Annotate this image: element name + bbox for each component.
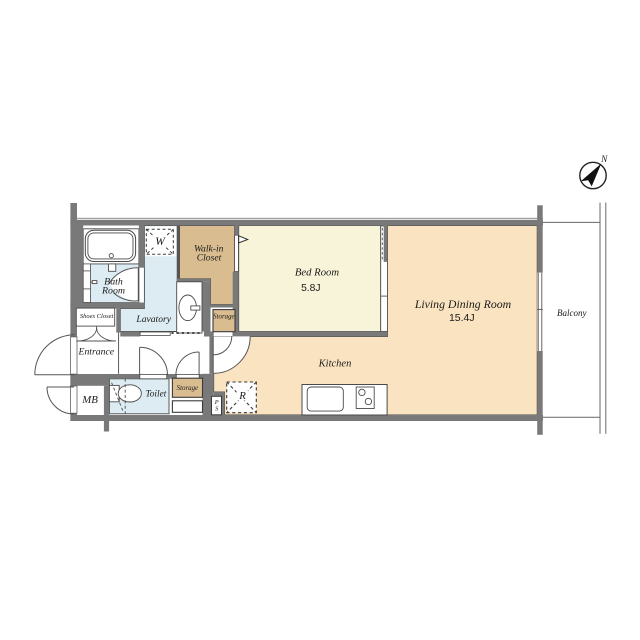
svg-text:Bed Room: Bed Room <box>295 267 340 279</box>
svg-text:Entrance: Entrance <box>78 346 115 357</box>
svg-text:Living Dining Room: Living Dining Room <box>414 297 512 311</box>
svg-text:Shoes Closet: Shoes Closet <box>80 313 114 320</box>
svg-text:Closet: Closet <box>197 252 222 263</box>
svg-text:5.8J: 5.8J <box>301 283 320 294</box>
svg-text:Lavatory: Lavatory <box>135 314 171 325</box>
svg-text:Kitchen: Kitchen <box>318 358 352 369</box>
svg-text:Toilet: Toilet <box>145 390 166 400</box>
svg-text:Storage: Storage <box>213 314 234 321</box>
svg-text:Balcony: Balcony <box>557 308 587 318</box>
svg-text:N: N <box>600 154 608 164</box>
svg-text:MB: MB <box>81 394 98 406</box>
svg-text:15.4J: 15.4J <box>449 312 475 324</box>
svg-text:R: R <box>238 390 246 402</box>
svg-text:W: W <box>155 236 166 248</box>
svg-text:Room: Room <box>101 286 125 297</box>
svg-text:Storage: Storage <box>177 385 198 392</box>
